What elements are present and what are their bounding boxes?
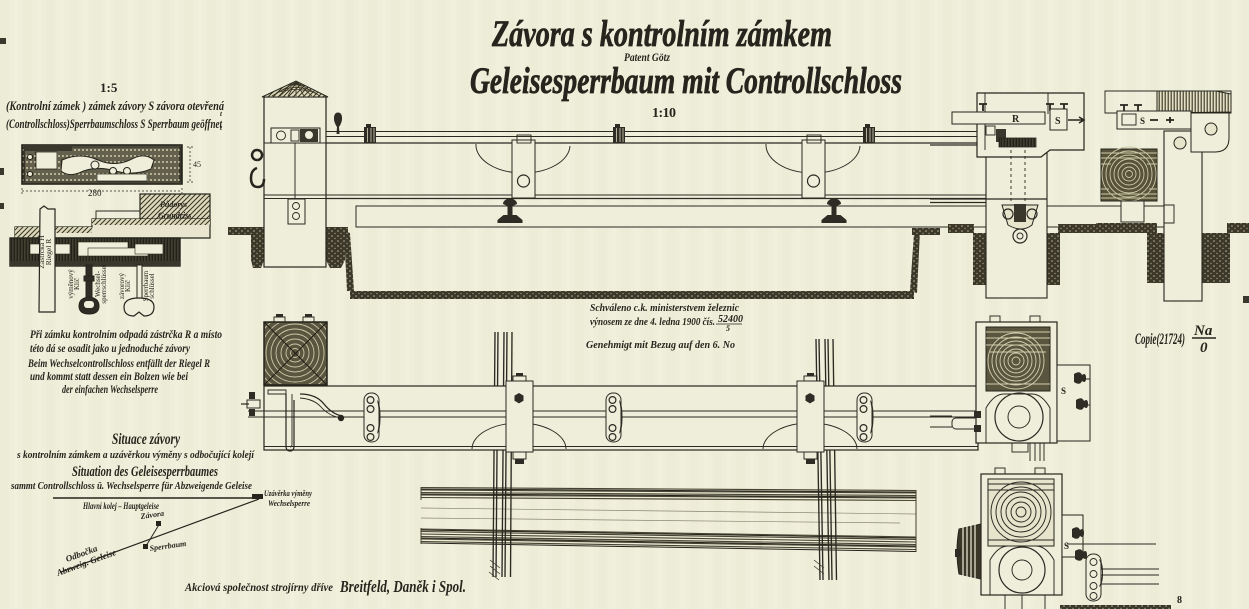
svg-text:Copie(21724): Copie(21724) — [1135, 331, 1185, 348]
svg-text:Situace závory: Situace závory — [112, 431, 181, 448]
svg-text:Breitfeld, Daněk i Spol.: Breitfeld, Daněk i Spol. — [339, 577, 466, 596]
svg-text:Půdorys: Půdorys — [160, 200, 187, 209]
svg-text:sammt Controllschloss ü. Wechs: sammt Controllschloss ü. Wechselsperre f… — [10, 480, 252, 492]
svg-text:5: 5 — [726, 324, 730, 333]
svg-text:Wechselsperre: Wechselsperre — [268, 499, 310, 508]
svg-text:und kommt statt dessen ein Bol: und kommt statt dessen ein Bolzen wie be… — [30, 369, 189, 383]
svg-text:Geleisesperrbaum mit Controlls: Geleisesperrbaum mit Controllschloss — [470, 61, 902, 102]
svg-text:Genehmigt mit Bezug auf den 6.: Genehmigt mit Bezug auf den 6. No — [586, 339, 735, 351]
svg-text:schlüssel: schlüssel — [148, 273, 156, 298]
svg-text:S: S — [1140, 116, 1145, 126]
svg-text:S: S — [1061, 386, 1066, 396]
svg-text:S: S — [1055, 116, 1061, 127]
svg-text:Na: Na — [1193, 323, 1213, 339]
svg-text:Uzávěrka výměny: Uzávěrka výměny — [264, 489, 312, 498]
svg-text:závorový: závorový — [118, 272, 126, 299]
svg-text:(Controllschloss)Sperrbaumschl: (Controllschloss)Sperrbaumschloss S Sper… — [6, 116, 222, 131]
svg-text:0: 0 — [1200, 340, 1208, 356]
svg-text:sperrschlüssel: sperrschlüssel — [100, 264, 108, 303]
svg-text:výměnový: výměnový — [67, 269, 75, 299]
svg-text:45: 45 — [193, 160, 201, 169]
svg-text:Závora s kontrolním zámkem: Závora s kontrolním zámkem — [491, 14, 832, 55]
svg-text:52400: 52400 — [718, 314, 743, 325]
svg-text:Beim Wechselcontrollschloss en: Beim Wechselcontrollschloss entfällt der… — [27, 356, 210, 370]
svg-text:této dá se osadit jako u jedno: této dá se osadit jako u jednoduché závo… — [30, 341, 191, 355]
svg-text:S: S — [1064, 541, 1069, 551]
svg-text:R: R — [1012, 114, 1020, 125]
svg-text:1:10: 1:10 — [652, 106, 676, 121]
svg-text:výnosem ze dne 4. ledna 1900 č: výnosem ze dne 4. ledna 1900 čís. — [590, 316, 715, 328]
svg-text:1:5: 1:5 — [100, 80, 118, 95]
svg-text:der einfachen Wechselsperre: der einfachen Wechselsperre — [62, 382, 158, 396]
svg-text:8: 8 — [1177, 595, 1182, 606]
svg-text:Schváleno c.k. ministerstvem ž: Schváleno c.k. ministerstvem železnic — [590, 302, 739, 314]
svg-text:s kontrolním zámkem a uzávěrko: s kontrolním zámkem a uzávěrkou výměny s… — [16, 449, 255, 461]
svg-text:280: 280 — [88, 188, 102, 198]
svg-text:Zástrčka H: Zástrčka H — [37, 235, 46, 269]
svg-text:Při zámku kontrolním odpadá zá: Při zámku kontrolním odpadá zástrčka R a… — [30, 327, 222, 341]
svg-text:Situation des Geleisesperrbaum: Situation des Geleisesperrbaumes — [72, 464, 218, 480]
svg-text:(Kontrolní zámek ) zámek závor: (Kontrolní zámek ) zámek závory S závora… — [6, 98, 224, 113]
svg-text:Hlavní kolej – Hauptgeleise: Hlavní kolej – Hauptgeleise — [82, 501, 159, 511]
svg-text:Akciová společnost strojírny d: Akciová společnost strojírny dříve — [184, 580, 333, 594]
